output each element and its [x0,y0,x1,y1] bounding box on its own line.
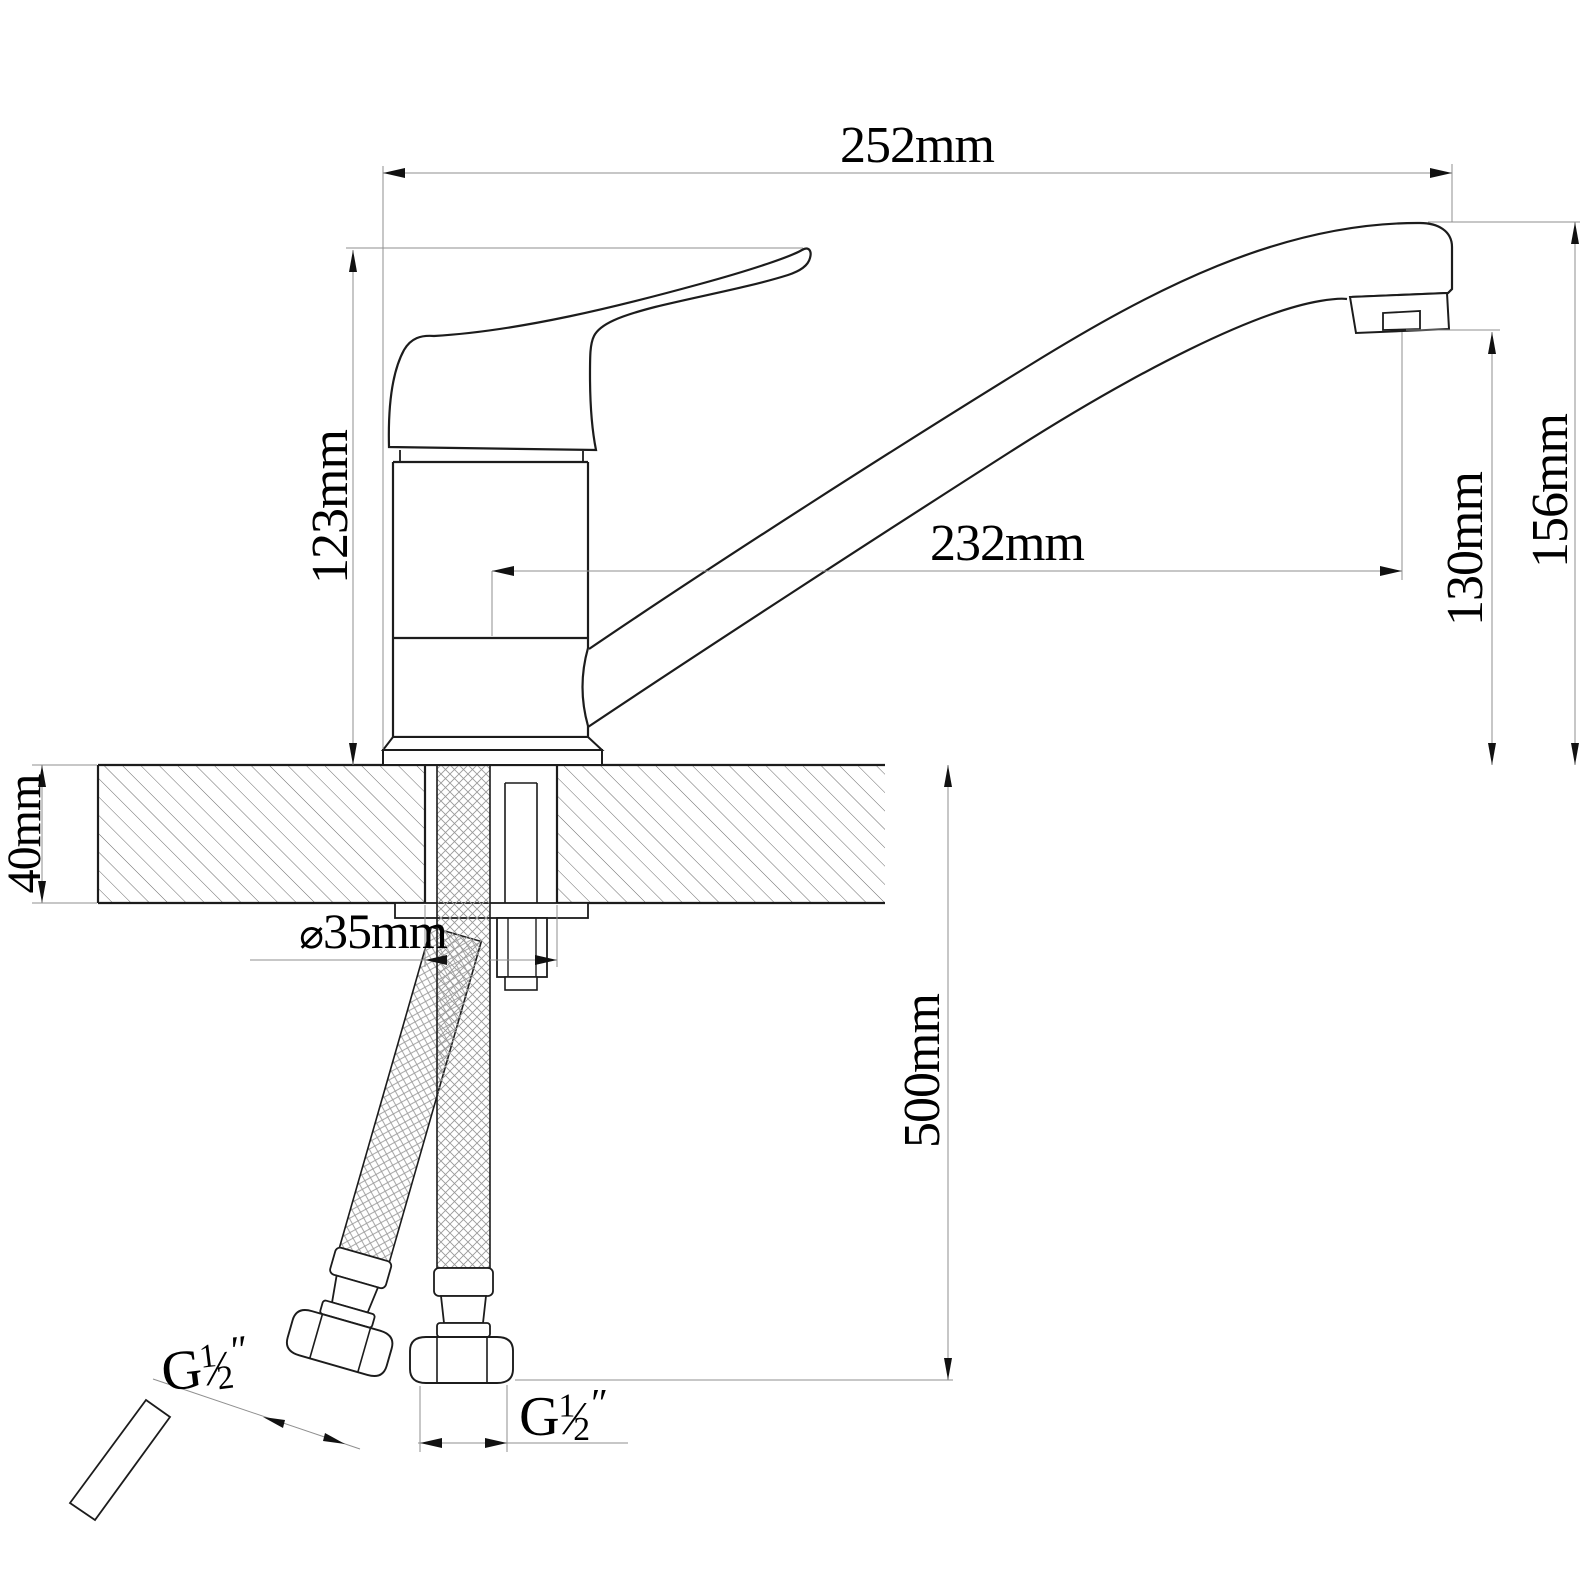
stud-end [505,977,537,990]
countertop-section [98,765,885,903]
hose-braid-vertical [437,765,490,1268]
dim-spout-reach-label: 232mm [930,518,1084,570]
thread-size-angled-label: G1⁄2″ [158,1330,253,1403]
body-fill [393,462,588,737]
thread-stub-angled [70,1400,170,1520]
dim-outlet-height-label: 130mm [1440,472,1492,626]
hose-ferrule-vertical [434,1268,493,1296]
countertop-hatch-right [557,766,885,903]
technical-drawing-page: 252mm 123mm 232mm 130mm 156mm 40mm ⌀35mm… [0,0,1580,1580]
dim-body-height-label: 123mm [305,430,357,584]
dim-overall-length-label: 252mm [840,120,994,172]
hose-nut-vertical [410,1337,513,1383]
dim-hole-diameter-label: ⌀35mm [299,906,446,956]
spout-outline [588,223,1452,727]
hose-ring-vertical [437,1323,490,1337]
diameter-symbol: ⌀ [299,910,323,958]
faucet [383,223,1452,765]
aerator-outlet [1383,311,1420,330]
base-flange [383,737,602,765]
dim-232-lines [492,332,1402,636]
handle-neck [400,450,583,462]
hose-collar-vertical [441,1296,486,1323]
dim-spout-top-height-label: 156mm [1525,414,1577,568]
mounting-nut [497,918,547,977]
threaded-stud [505,783,537,918]
dim-hose-length-label: 500mm [897,994,949,1148]
handle [389,249,811,450]
countertop-hatch-left [98,766,425,903]
dim-deck-thickness-label: 40mm [1,775,49,894]
thread-size-vertical-label: G1⁄2″ [519,1384,607,1447]
